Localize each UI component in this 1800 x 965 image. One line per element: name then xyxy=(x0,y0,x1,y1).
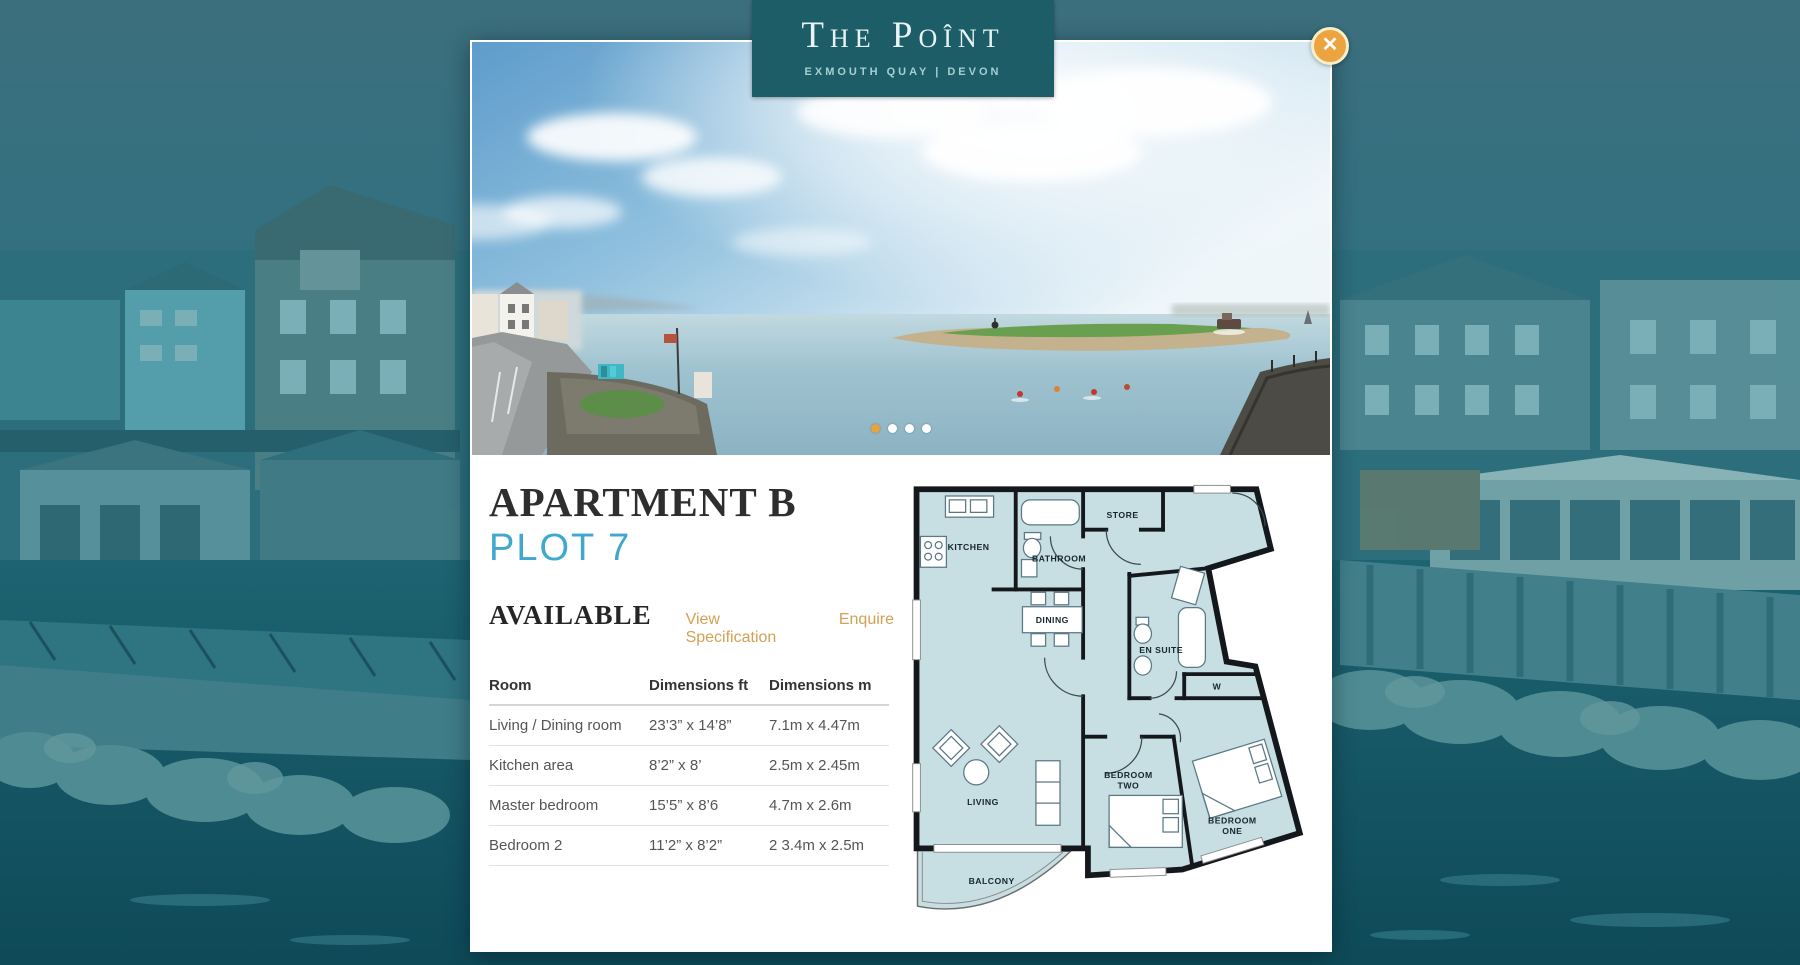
cell-m: 4.7m x 2.6m xyxy=(769,786,889,826)
cell-m: 7.1m x 4.47m xyxy=(769,705,889,746)
brand-banner: The Poînt EXMOUTH QUAY | DEVON xyxy=(752,0,1054,97)
carousel-dots xyxy=(472,420,1330,438)
carousel-dot-1[interactable] xyxy=(871,424,880,433)
cell-m: 2.5m x 2.45m xyxy=(769,746,889,786)
column-header-dimensions-m: Dimensions m xyxy=(769,669,889,705)
brand-subtitle: EXMOUTH QUAY | DEVON xyxy=(752,66,1054,78)
cell-ft: 15’5” x 8’6 xyxy=(649,786,769,826)
room-label-living: LIVING xyxy=(967,797,999,807)
table-row: Kitchen area 8’2” x 8’ 2.5m x 2.45m xyxy=(489,746,889,786)
plot-number: PLOT 7 xyxy=(489,527,894,570)
apartment-modal: APARTMENT B PLOT 7 AVAILABLE View Specif… xyxy=(470,40,1332,952)
cell-ft: 11’2” x 8’2” xyxy=(649,826,769,866)
table-row: Master bedroom 15’5” x 8’6 4.7m x 2.6m xyxy=(489,786,889,826)
table-row: Living / Dining room 23’3” x 14’8” 7.1m … xyxy=(489,705,889,746)
estuary-photo xyxy=(472,42,1330,455)
cell-room: Bedroom 2 xyxy=(489,826,649,866)
room-label-bedroom-two-line2: TWO xyxy=(1118,781,1140,791)
room-label-wardrobe: W xyxy=(1213,682,1222,692)
cell-ft: 8’2” x 8’ xyxy=(649,746,769,786)
carousel-dot-3[interactable] xyxy=(905,424,914,433)
table-row: Bedroom 2 11’2” x 8’2” 2 3.4m x 2.5m xyxy=(489,826,889,866)
cell-room: Living / Dining room xyxy=(489,705,649,746)
photo-carousel xyxy=(472,42,1330,455)
column-header-room: Room xyxy=(489,669,649,705)
room-label-ensuite: EN SUITE xyxy=(1139,645,1183,655)
brand-title: The Poînt xyxy=(752,14,1054,57)
floorplan: KITCHEN BATHROOM STORE DINING EN SUITE W… xyxy=(905,472,1319,939)
availability-status: AVAILABLE xyxy=(489,600,652,631)
room-label-bedroom-two-line1: BEDROOM xyxy=(1104,770,1153,780)
view-specification-link[interactable]: View Specification xyxy=(686,611,801,647)
column-header-dimensions-ft: Dimensions ft xyxy=(649,669,769,705)
room-label-balcony: BALCONY xyxy=(969,876,1015,886)
carousel-dot-4[interactable] xyxy=(922,424,931,433)
room-label-store: STORE xyxy=(1107,510,1139,520)
room-label-dining: DINING xyxy=(1036,615,1069,625)
cell-ft: 23’3” x 14’8” xyxy=(649,705,769,746)
close-button[interactable]: ✕ xyxy=(1311,27,1349,65)
cell-room: Kitchen area xyxy=(489,746,649,786)
apartment-details: APARTMENT B PLOT 7 AVAILABLE View Specif… xyxy=(489,482,894,866)
room-label-bedroom-one-line2: ONE xyxy=(1222,826,1242,836)
cell-m: 2 3.4m x 2.5m xyxy=(769,826,889,866)
dimensions-table: Room Dimensions ft Dimensions m Living /… xyxy=(489,669,889,866)
room-label-kitchen: KITCHEN xyxy=(948,542,990,552)
cell-room: Master bedroom xyxy=(489,786,649,826)
enquire-link[interactable]: Enquire xyxy=(839,611,894,629)
room-label-bathroom: BATHROOM xyxy=(1032,553,1086,563)
carousel-dot-2[interactable] xyxy=(888,424,897,433)
apartment-title: APARTMENT B xyxy=(489,482,894,523)
room-label-bedroom-one-line1: BEDROOM xyxy=(1208,815,1257,825)
